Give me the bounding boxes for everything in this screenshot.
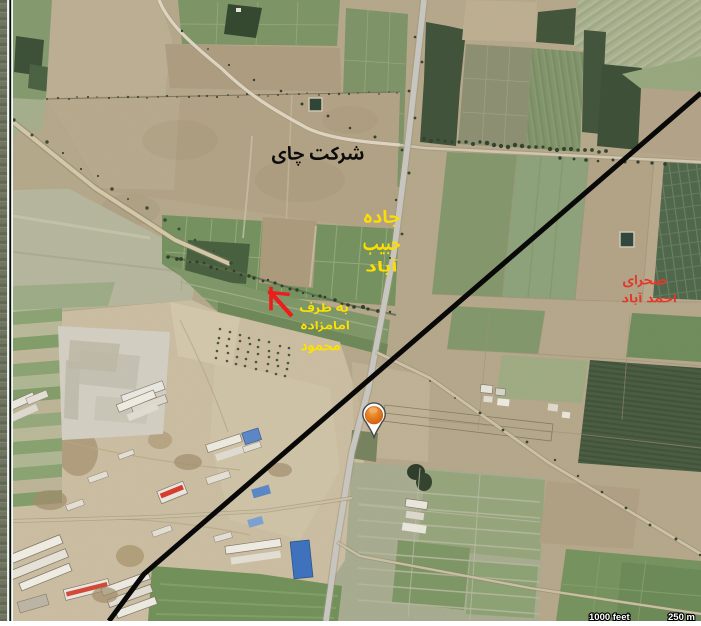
svg-text:250 m: 250 m bbox=[668, 612, 695, 621]
svg-text:1000 feet: 1000 feet bbox=[589, 612, 631, 621]
